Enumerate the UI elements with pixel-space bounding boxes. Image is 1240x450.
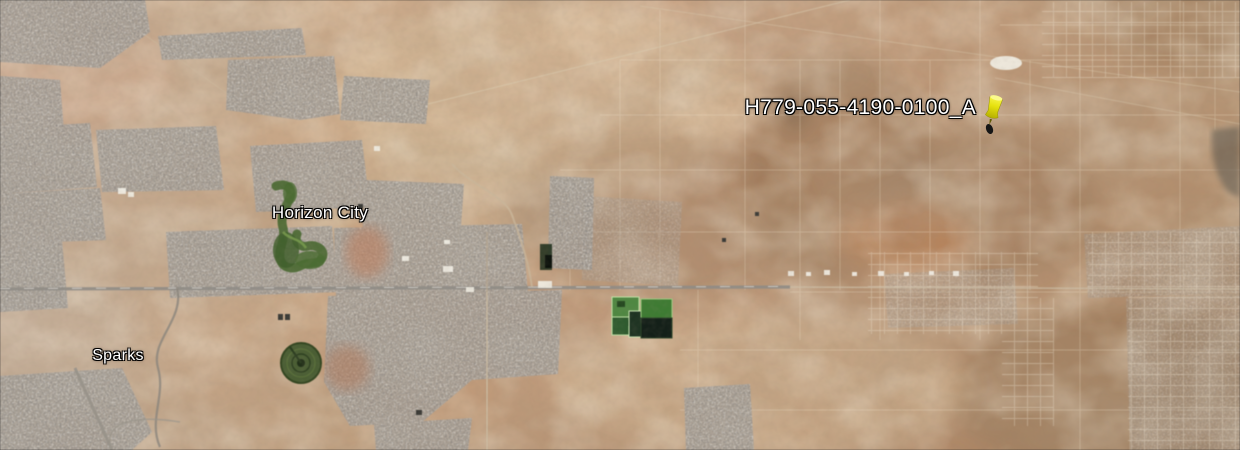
- satellite-imagery-canvas: [0, 0, 1240, 450]
- place-label-sparks: Sparks: [92, 347, 144, 365]
- placemark-label[interactable]: H779-055-4190-0100_A: [745, 96, 976, 119]
- pushpin-icon[interactable]: [981, 94, 1007, 136]
- place-label-horizon-city: Horizon City: [272, 203, 368, 223]
- map-viewport[interactable]: Horizon City Sparks H779-055-4190-0100_A: [0, 0, 1240, 450]
- placemark[interactable]: H779-055-4190-0100_A: [745, 94, 1007, 136]
- fine-grain-overlay: [0, 0, 1240, 450]
